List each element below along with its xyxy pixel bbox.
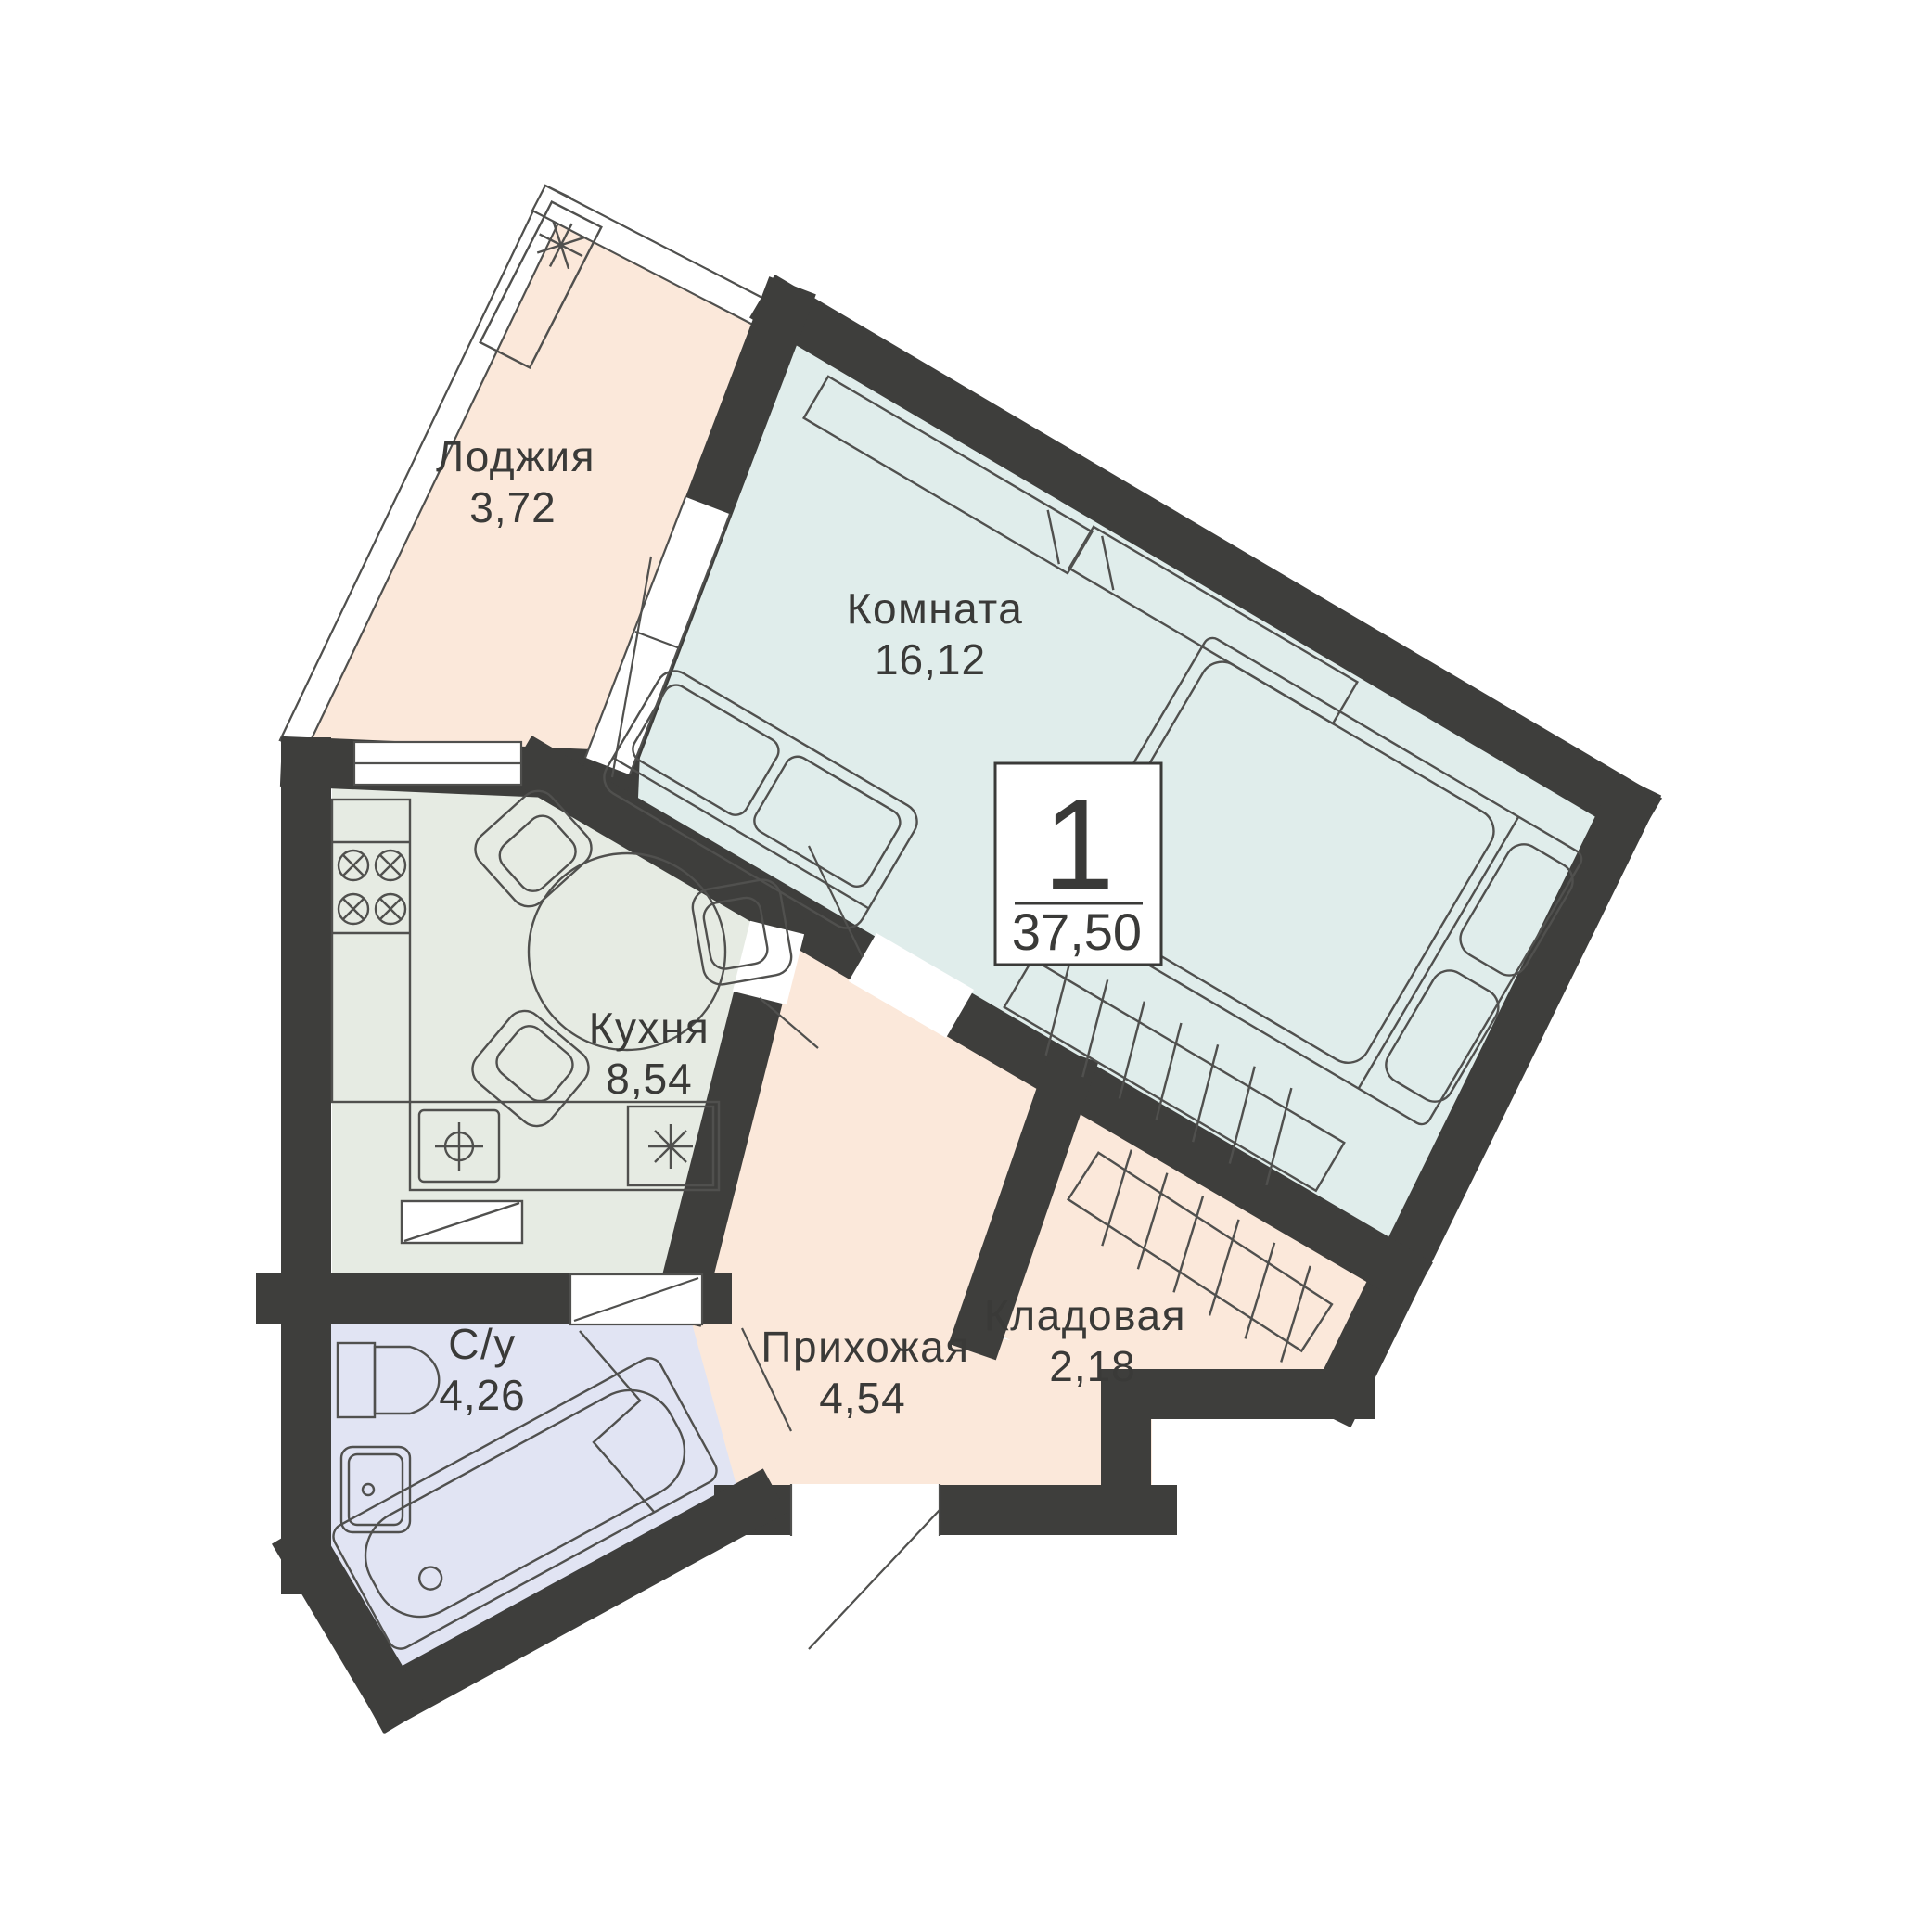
kitchen-area: 8,54	[606, 1055, 693, 1103]
living-area: 16,12	[875, 635, 986, 684]
window-loggia-kitchen	[354, 742, 521, 785]
living-label: Комната	[847, 584, 1024, 633]
floor-plan-svg: Лоджия 3,72 Комната 16,12 Кухня 8,54 С/у…	[0, 0, 1932, 1932]
floor-plan-page: Лоджия 3,72 Комната 16,12 Кухня 8,54 С/у…	[0, 0, 1932, 1932]
badge-total-area: 37,50	[1012, 902, 1142, 961]
loggia-area: 3,72	[469, 483, 557, 531]
entrance-door	[791, 1484, 940, 1649]
bathroom-door	[570, 1274, 702, 1324]
bathroom-label: С/у	[448, 1320, 517, 1368]
apartment-badge: 1 37,50	[995, 763, 1161, 965]
badge-rooms-count: 1	[1043, 774, 1115, 916]
storage-area: 2,18	[1049, 1342, 1136, 1390]
storage-label: Кладовая	[984, 1291, 1186, 1339]
loggia-label: Лоджия	[436, 432, 595, 480]
bathroom-area: 4,26	[439, 1371, 526, 1419]
kitchen-label: Кухня	[589, 1004, 710, 1052]
hallway-area: 4,54	[819, 1374, 906, 1422]
washer-icon	[402, 1201, 522, 1243]
hallway-label: Прихожая	[761, 1323, 969, 1371]
